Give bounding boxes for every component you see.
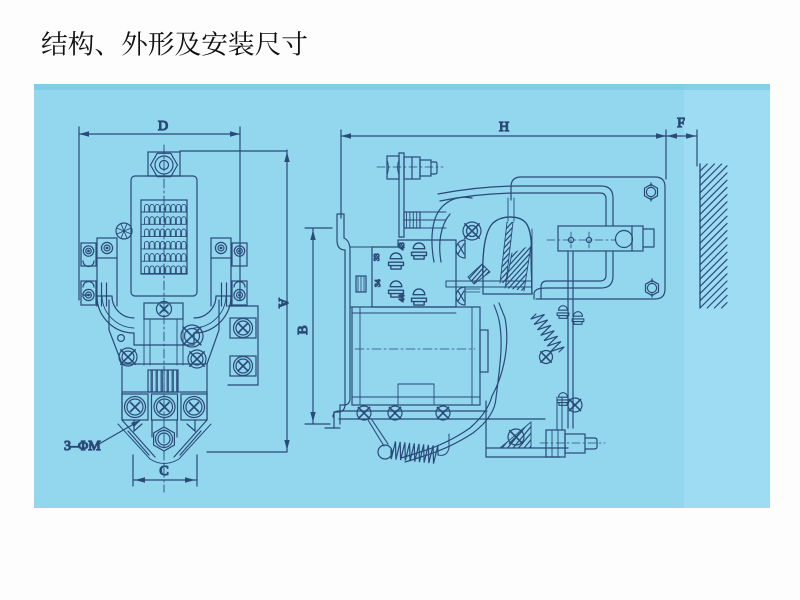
svg-text:H: H — [499, 120, 509, 135]
svg-text:43: 43 — [397, 242, 406, 250]
svg-text:3–ΦM: 3–ΦM — [64, 439, 101, 454]
svg-text:B: B — [296, 325, 311, 334]
svg-text:33: 33 — [372, 253, 381, 261]
svg-text:34: 34 — [373, 279, 382, 287]
svg-text:A: A — [275, 298, 290, 309]
svg-text:F: F — [677, 116, 685, 131]
svg-text:44: 44 — [397, 294, 406, 302]
svg-text:D: D — [158, 119, 168, 134]
